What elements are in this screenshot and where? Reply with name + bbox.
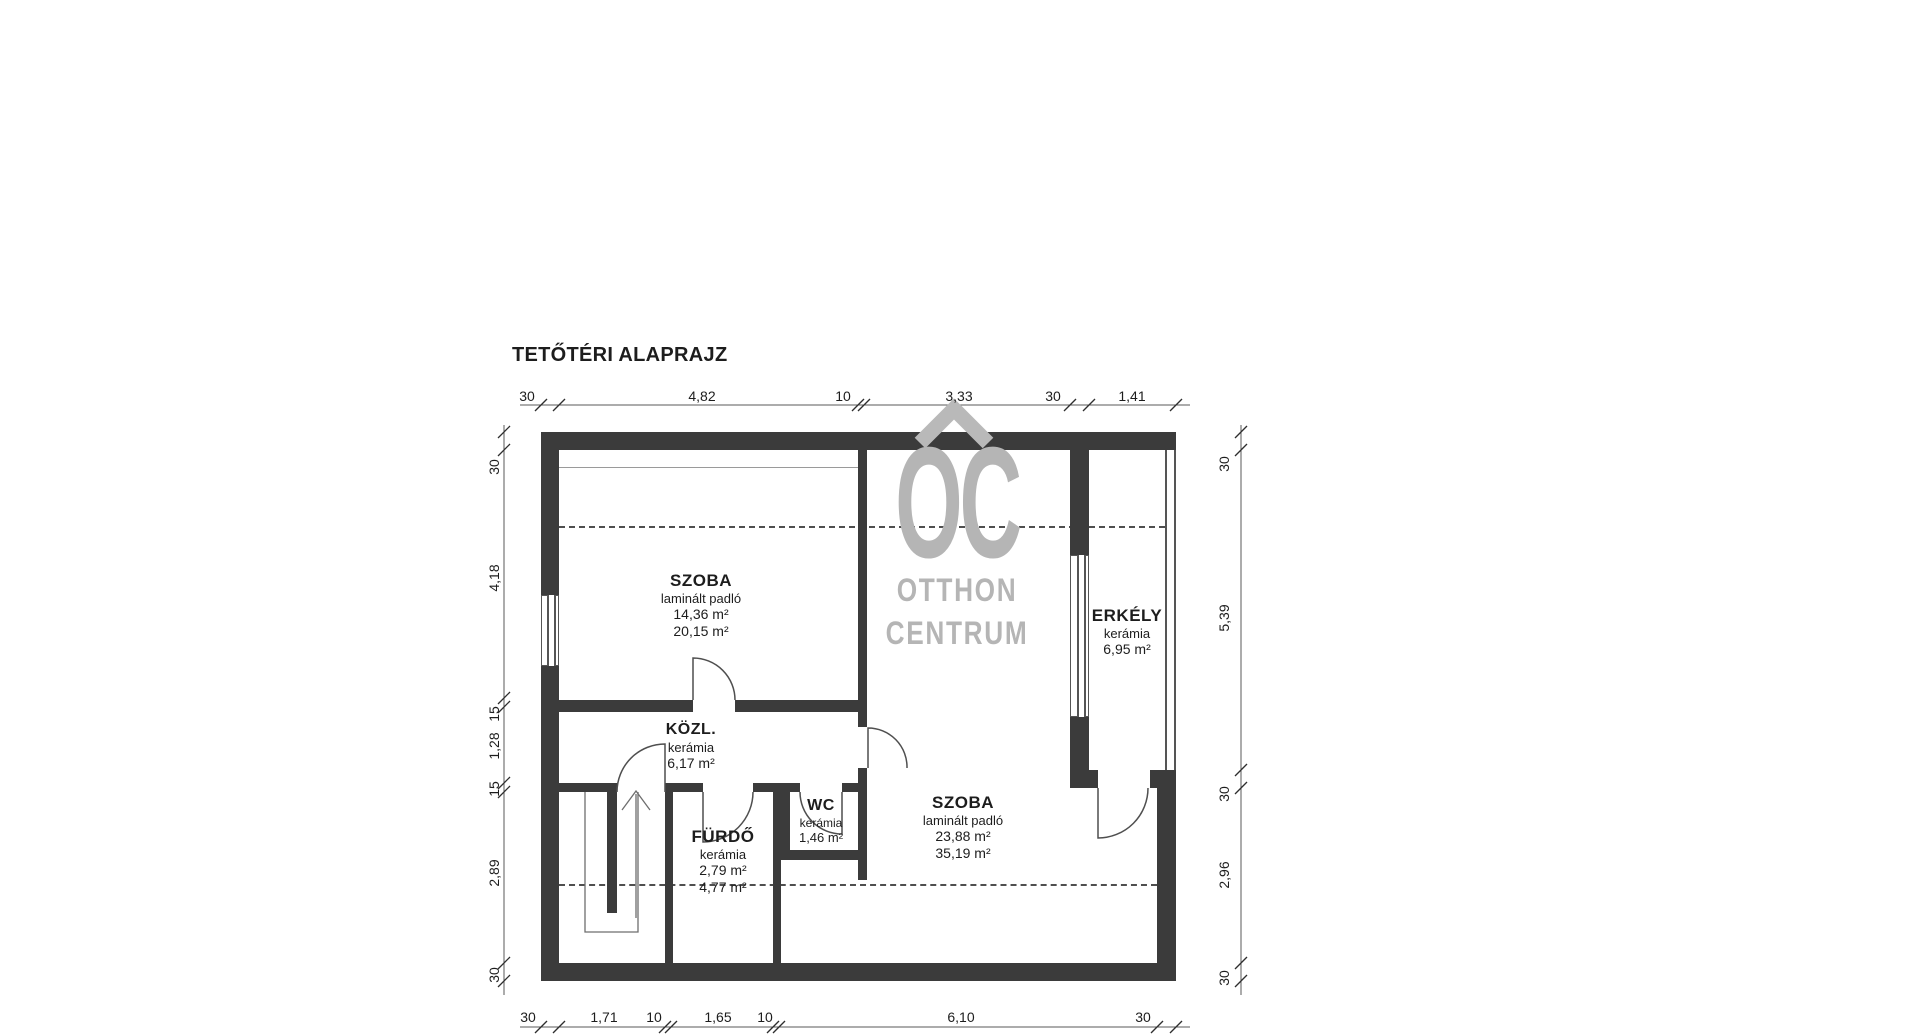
room-floor: kerámia bbox=[692, 847, 755, 862]
dim-label: 15 bbox=[486, 706, 502, 722]
room-floor: kerámia bbox=[799, 816, 843, 830]
room-area-net: 6,95 m² bbox=[1092, 641, 1162, 658]
dim-label: 1,28 bbox=[486, 732, 502, 759]
plan-linework bbox=[0, 0, 1920, 1035]
dim-label: 4,82 bbox=[688, 388, 715, 404]
dim-label: 5,39 bbox=[1216, 604, 1232, 631]
dim-label: 30 bbox=[486, 967, 502, 983]
room-name: WC bbox=[799, 797, 843, 816]
plan-title: TETŐTÉRI ALAPRAJZ bbox=[512, 344, 727, 367]
staircase bbox=[585, 791, 650, 932]
dim-label: 10 bbox=[646, 1009, 662, 1025]
room-floor: kerámia bbox=[666, 740, 717, 755]
door-kozl-stairs bbox=[617, 744, 665, 792]
floor-plan-canvas: TETŐTÉRI ALAPRAJZ bbox=[0, 0, 1920, 1035]
dim-label: 30 bbox=[520, 1009, 536, 1025]
dimension-line-right bbox=[1235, 425, 1247, 995]
room-name: FÜRDŐ bbox=[692, 827, 755, 847]
dim-label: 1,65 bbox=[704, 1009, 731, 1025]
stair-outline bbox=[585, 792, 638, 932]
room-label-erkely: ERKÉLY kerámia 6,95 m² bbox=[1092, 606, 1162, 658]
dim-label: 2,89 bbox=[486, 859, 502, 886]
dim-label: 10 bbox=[835, 388, 851, 404]
dim-label: 1,71 bbox=[590, 1009, 617, 1025]
room-name: ERKÉLY bbox=[1092, 606, 1162, 626]
dim-label: 30 bbox=[519, 388, 535, 404]
dim-label: 30 bbox=[1045, 388, 1061, 404]
room-area-gross: 35,19 m² bbox=[923, 845, 1003, 862]
dimension-line-top bbox=[520, 399, 1190, 411]
dim-label: 15 bbox=[486, 781, 502, 797]
room-area-gross: 4,77 m² bbox=[692, 879, 755, 896]
dim-label: 10 bbox=[757, 1009, 773, 1025]
room-area-net: 14,36 m² bbox=[661, 606, 741, 623]
door-erkely bbox=[1098, 788, 1148, 838]
room-area-net: 23,88 m² bbox=[923, 828, 1003, 845]
room-floor: laminált padló bbox=[923, 813, 1003, 828]
dim-label: 3,33 bbox=[945, 388, 972, 404]
room-area-net: 2,79 m² bbox=[692, 862, 755, 879]
room-label-furdo: FÜRDŐ kerámia 2,79 m² 4,77 m² bbox=[692, 827, 755, 895]
dim-label: 30 bbox=[1216, 786, 1232, 802]
room-label-szoba2: SZOBA laminált padló 23,88 m² 35,19 m² bbox=[923, 793, 1003, 861]
room-name: SZOBA bbox=[923, 793, 1003, 813]
door-szoba1 bbox=[693, 658, 735, 700]
room-area-net: 1,46 m² bbox=[799, 830, 843, 845]
dim-label: 30 bbox=[1216, 456, 1232, 472]
room-area-net: 6,17 m² bbox=[666, 755, 717, 772]
room-label-wc: WC kerámia 1,46 m² bbox=[799, 797, 843, 845]
room-name: KÖZL. bbox=[666, 721, 717, 740]
room-floor: laminált padló bbox=[661, 591, 741, 606]
room-name: SZOBA bbox=[661, 571, 741, 591]
dim-label: 2,96 bbox=[1216, 861, 1232, 888]
room-label-szoba1: SZOBA laminált padló 14,36 m² 20,15 m² bbox=[661, 571, 741, 639]
dimension-line-bottom bbox=[520, 1021, 1190, 1033]
dim-label: 4,18 bbox=[486, 564, 502, 591]
dim-label: 1,41 bbox=[1118, 388, 1145, 404]
room-area-gross: 20,15 m² bbox=[661, 623, 741, 640]
room-floor: kerámia bbox=[1092, 626, 1162, 641]
dim-label: 30 bbox=[1216, 970, 1232, 986]
dim-label: 6,10 bbox=[947, 1009, 974, 1025]
house-roof-icon bbox=[920, 409, 988, 443]
door-szoba2 bbox=[868, 728, 907, 768]
dim-label: 30 bbox=[1135, 1009, 1151, 1025]
dim-label: 30 bbox=[486, 459, 502, 475]
room-label-kozl: KÖZL. kerámia 6,17 m² bbox=[666, 721, 717, 772]
